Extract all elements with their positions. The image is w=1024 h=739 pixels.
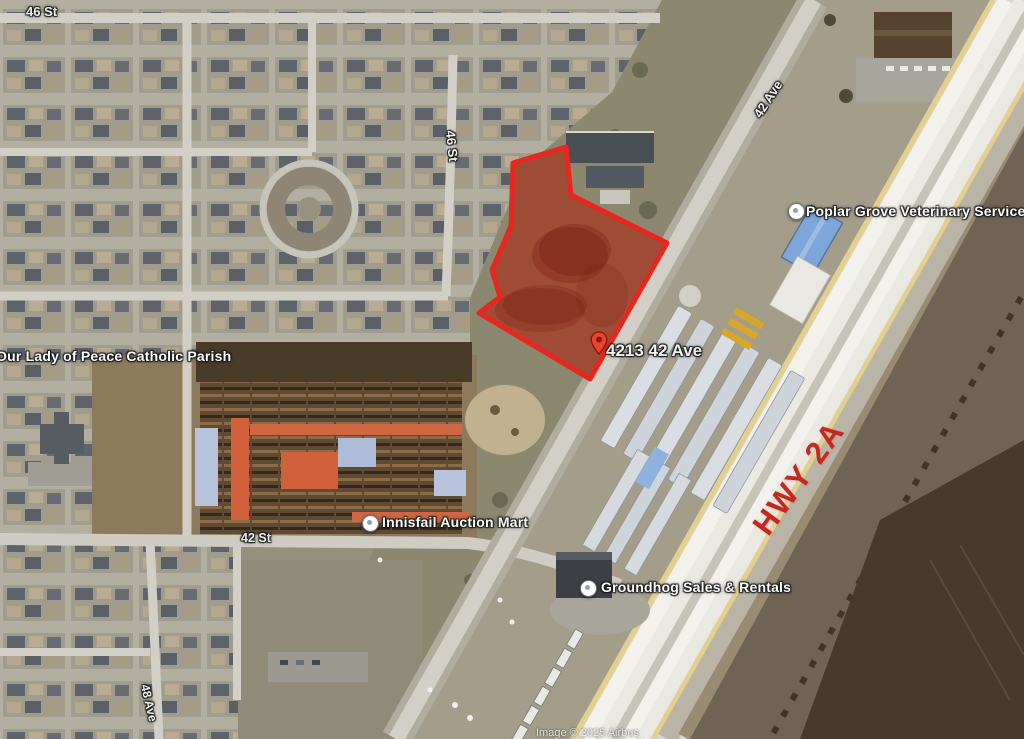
poi-pin-groundhog[interactable] — [580, 580, 597, 597]
parcel-placemark-pin[interactable] — [590, 331, 608, 355]
poi-pin-poplar-grove[interactable] — [788, 203, 805, 220]
poi-pin-innisfail-auction[interactable] — [362, 515, 379, 532]
satellite-imagery — [0, 0, 1024, 739]
map-canvas[interactable]: 46 St 46 St 42 Ave 42 St 48 Ave Poplar G… — [0, 0, 1024, 739]
